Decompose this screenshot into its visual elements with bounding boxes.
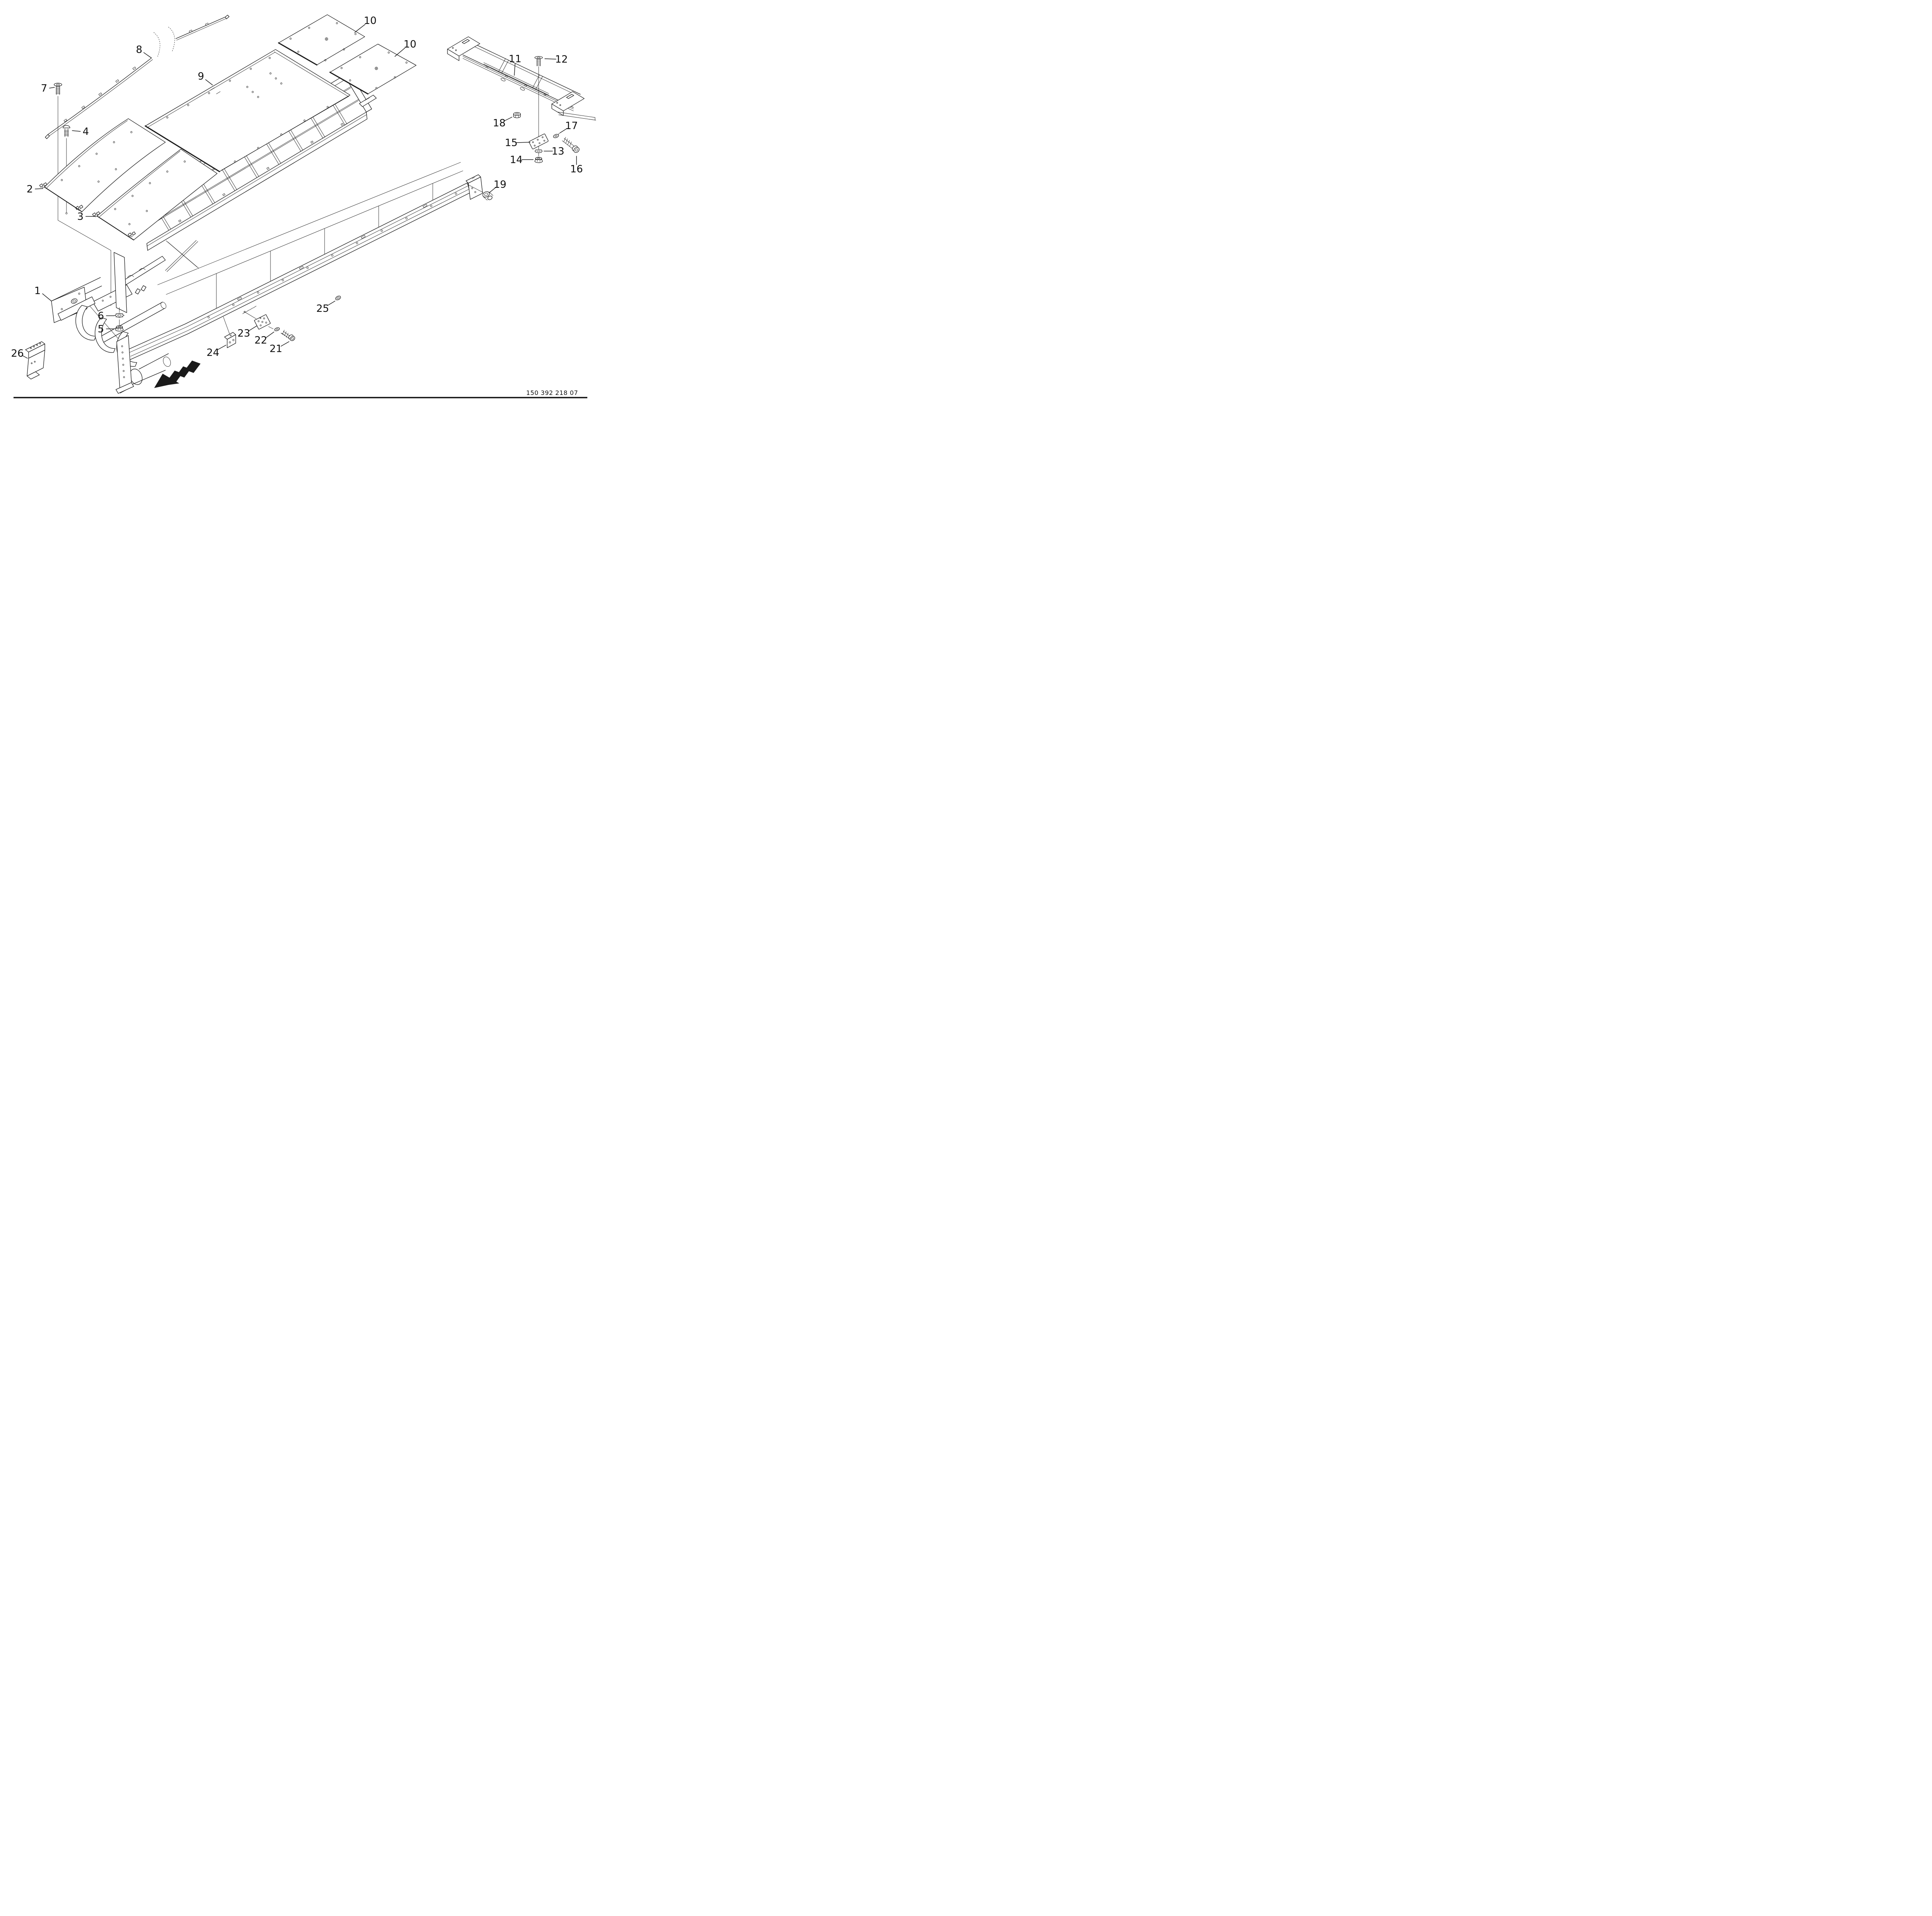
callout-number-21-20: 21 [269, 343, 282, 355]
callout-number-3-2: 3 [77, 211, 84, 223]
parts-diagram-canvas: 1234567891010111213141516171819212223242… [0, 0, 606, 428]
callout-leader-15-15 [517, 142, 530, 143]
callout-number-10-9: 10 [364, 15, 376, 27]
footer-rule [14, 397, 587, 398]
hex-nut-18 [514, 112, 520, 118]
direction-arrow [154, 361, 201, 388]
hex-bolt-21 [282, 330, 296, 342]
cover-panel-10-right [330, 44, 416, 94]
callout-number-14-14: 14 [510, 154, 522, 166]
cover-panel-10-left [279, 15, 365, 65]
callout-number-4-3: 4 [83, 126, 89, 138]
callout-number-23-22: 23 [237, 328, 250, 339]
callout-number-6-5: 6 [98, 310, 104, 322]
callout-number-17-17: 17 [565, 120, 578, 132]
callout-leader-4-3 [72, 131, 80, 131]
callout-number-5-4: 5 [98, 323, 104, 335]
bracket-26 [26, 342, 45, 379]
washer-22 [274, 327, 280, 332]
flange-nut-14 [535, 157, 543, 163]
cover-plate-23 [254, 315, 270, 330]
callout-number-8-7: 8 [136, 44, 143, 56]
callout-leader-2-1 [35, 189, 43, 189]
subframe-11 [447, 37, 596, 120]
callout-number-7-6: 7 [41, 83, 48, 94]
callout-number-1-0: 1 [34, 285, 41, 297]
machine-drawing [26, 15, 596, 393]
plug-25 [335, 295, 342, 301]
flange-nut-5 [116, 326, 123, 331]
callout-number-2-1: 2 [27, 184, 33, 195]
callout-number-10-10: 10 [403, 39, 416, 50]
callout-leader-7-6 [49, 87, 54, 88]
serrated-washer-13 [534, 149, 543, 153]
callout-number-12-12: 12 [555, 54, 568, 65]
callout-leader-9-8 [206, 80, 213, 85]
callout-number-9-8: 9 [198, 71, 204, 82]
hex-bolt-16 [562, 137, 580, 153]
callout-number-24-23: 24 [206, 347, 219, 359]
callout-leader-1-0 [43, 294, 51, 301]
diagram-page: 1234567891010111213141516171819212223242… [0, 0, 606, 428]
callout-number-25-24: 25 [316, 303, 329, 315]
part-number: 150 392 218 07 [526, 389, 578, 396]
callout-number-26-25: 26 [11, 348, 24, 359]
bracket-24 [223, 317, 236, 348]
callout-number-16-16: 16 [570, 163, 583, 175]
callout-number-22-21: 22 [254, 335, 267, 346]
callout-number-11-11: 11 [509, 53, 521, 65]
lock-washer-17 [553, 133, 560, 138]
callout-number-19-19: 19 [493, 179, 506, 191]
serrated-washer-6 [114, 313, 124, 318]
callout-number-15-15: 15 [505, 137, 517, 149]
callout-leader-12-12 [545, 59, 556, 59]
callout-leader-8-7 [144, 53, 151, 58]
callout-number-18-18: 18 [493, 117, 505, 129]
callout-number-13-13: 13 [551, 146, 564, 157]
